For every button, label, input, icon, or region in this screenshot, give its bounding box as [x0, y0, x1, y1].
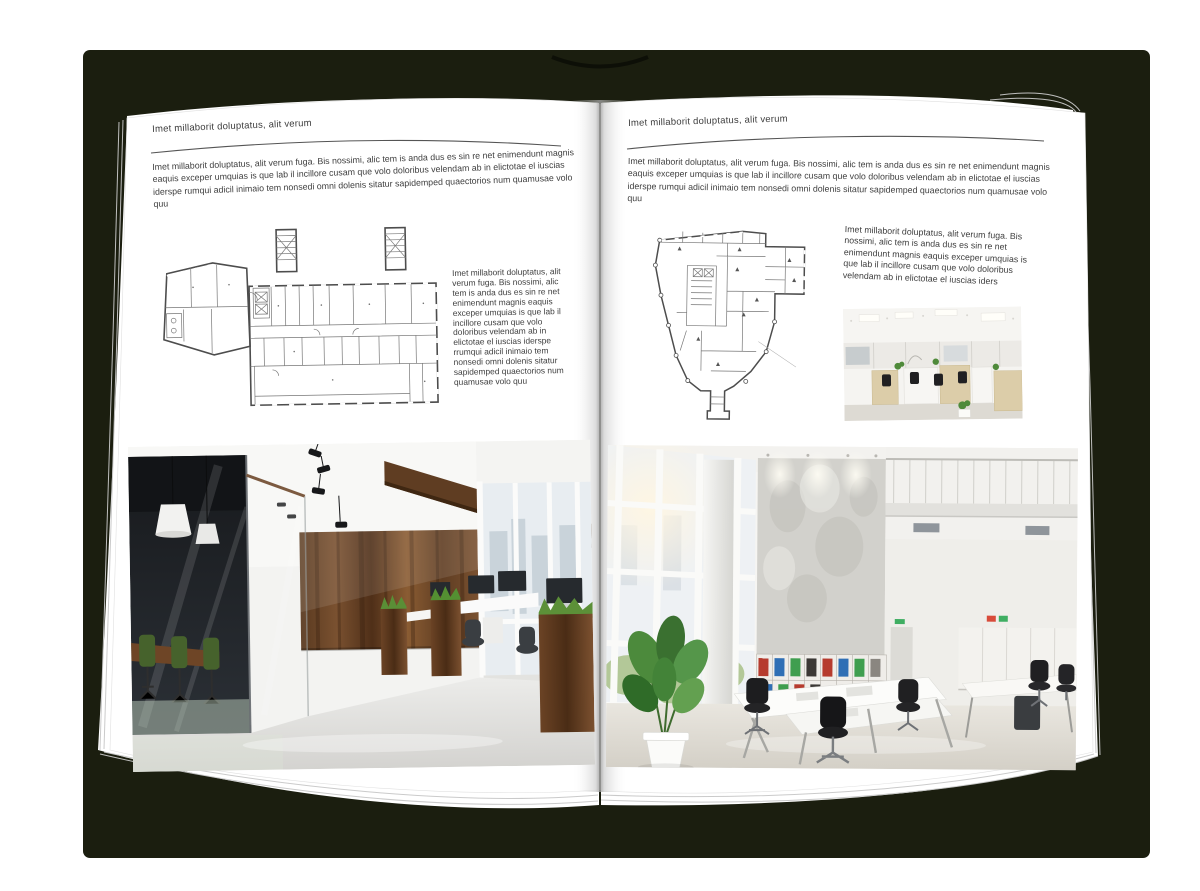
magazine-mockup: Imet millaborit doluptatus, alit verum I…	[0, 0, 1200, 891]
right-small-photo	[843, 307, 1023, 421]
right-floor-plan	[645, 220, 838, 428]
right-page-caption: Imet millaborit doluptatus, alit verum f…	[843, 224, 1029, 289]
right-photo	[606, 445, 1078, 770]
left-page-caption: Imet millaborit doluptatus, alit verum f…	[452, 267, 572, 388]
left-photo	[128, 440, 595, 772]
left-floor-plan	[152, 223, 451, 418]
right-page-intro: Imet millaborit doluptatus, alit verum f…	[627, 155, 1056, 211]
